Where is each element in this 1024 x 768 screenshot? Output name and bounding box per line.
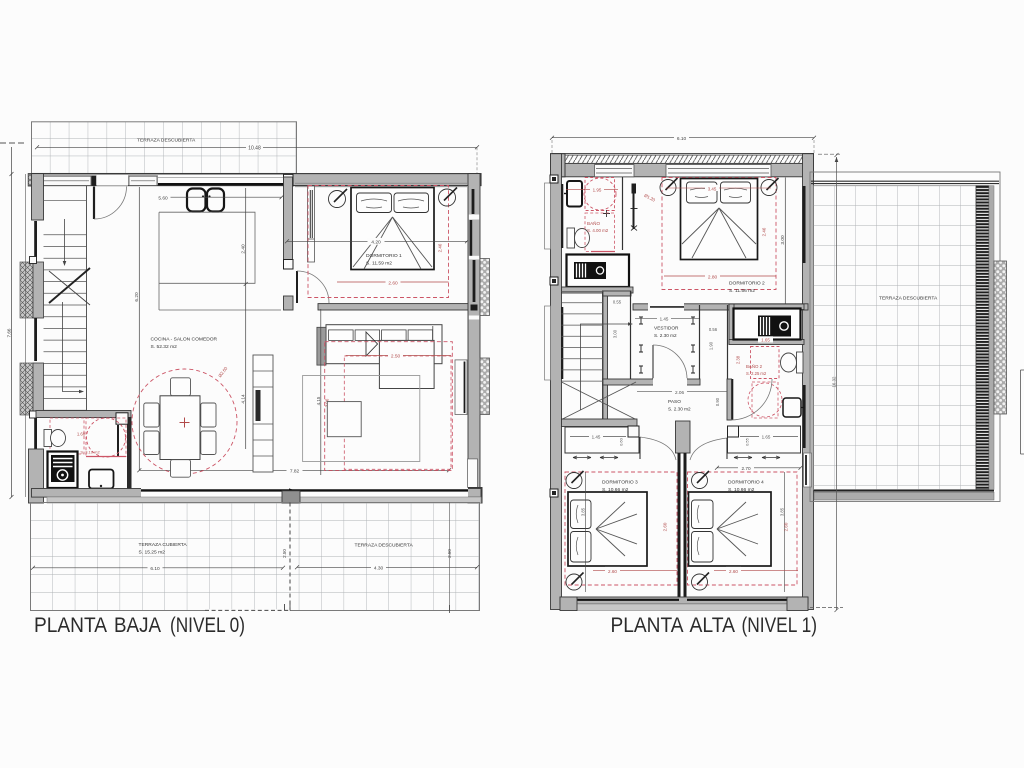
svg-text:2.50: 2.50 [282,549,287,558]
svg-text:0.60: 0.60 [619,437,624,446]
svg-text:S. 11.56 m2: S. 11.56 m2 [729,288,755,294]
svg-text:2.46: 2.46 [762,227,767,236]
svg-text:4.15: 4.15 [316,396,321,405]
svg-text:2.50: 2.50 [391,354,401,360]
svg-text:2.40: 2.40 [241,244,247,254]
svg-text:4.30: 4.30 [374,566,384,572]
svg-text:2.60: 2.60 [608,569,617,574]
svg-text:3.00: 3.00 [780,235,786,245]
svg-text:0.55: 0.55 [745,437,750,446]
svg-text:0.55: 0.55 [613,300,622,305]
svg-text:S. 2.30 m2: S. 2.30 m2 [654,333,677,338]
svg-text:16.32: 16.32 [831,376,836,388]
svg-text:DORMITORIO 4: DORMITORIO 4 [728,480,764,486]
svg-text:TERRAZA CUBIERTA: TERRAZA CUBIERTA [139,542,188,548]
svg-text:1.65: 1.65 [761,338,770,343]
svg-text:0.56: 0.56 [709,327,718,332]
svg-text:DORMITORIO 1: DORMITORIO 1 [366,253,402,259]
svg-text:6.10: 6.10 [677,136,687,142]
svg-text:(NIVEL 1): (NIVEL 1) [742,614,818,637]
svg-text:2.70: 2.70 [741,466,751,471]
svg-text:S. 11.59 m2: S. 11.59 m2 [366,261,392,267]
svg-text:4.20: 4.20 [371,240,381,246]
svg-text:1.68: 1.68 [77,432,86,437]
svg-text:1.65: 1.65 [762,435,771,440]
svg-text:3.85: 3.85 [581,507,586,516]
svg-text:5.60: 5.60 [158,195,168,201]
svg-text:S. 10.66 m2: S. 10.66 m2 [602,487,629,493]
svg-text:4.14: 4.14 [241,394,247,404]
svg-text:TERRAZA DESCUBIERTA: TERRAZA DESCUBIERTA [879,296,938,302]
svg-text:S. 15.25 m2: S. 15.25 m2 [139,550,166,556]
svg-text:(NIVEL 0): (NIVEL 0) [170,614,245,637]
svg-text:3.00: 3.00 [613,329,618,338]
svg-text:DORMITORIO 3: DORMITORIO 3 [602,480,638,486]
svg-text:3.45: 3.45 [708,186,717,191]
svg-text:S. 4.00 m2: S. 4.00 m2 [587,228,609,233]
svg-text:10.48: 10.48 [248,146,261,152]
svg-text:1.90: 1.90 [709,341,714,350]
svg-text:2.60: 2.60 [388,281,398,287]
svg-text:2.60: 2.60 [663,522,668,531]
svg-text:S. 3.19 m2: S. 3.19 m2 [80,450,100,455]
svg-text:2.46: 2.46 [438,243,443,252]
svg-text:DORMITORIO 2: DORMITORIO 2 [729,281,765,287]
svg-text:1.45: 1.45 [660,316,669,321]
svg-text:PLANTA: PLANTA [611,614,684,637]
svg-text:2.38: 2.38 [736,355,741,364]
svg-text:0.90: 0.90 [715,397,720,406]
svg-text:S. 2.30 m2: S. 2.30 m2 [668,407,691,412]
svg-text:ALTA: ALTA [690,614,736,637]
svg-text:TERRAZA DESCUBIERTA: TERRAZA DESCUBIERTA [355,543,414,549]
svg-text:PLANTA: PLANTA [34,614,107,637]
svg-text:6.20: 6.20 [134,292,140,302]
svg-text:2.80: 2.80 [708,275,718,281]
svg-text:3.85: 3.85 [780,507,785,516]
svg-text:6.10: 6.10 [150,566,160,572]
svg-text:7.82: 7.82 [290,469,300,475]
svg-text:S. 2.25 m2: S. 2.25 m2 [746,371,767,376]
svg-text:VESTIDOR: VESTIDOR [654,326,679,332]
svg-text:2.60: 2.60 [784,522,789,531]
svg-text:BAÑO 2: BAÑO 2 [746,364,763,369]
svg-text:2.06: 2.06 [675,390,685,395]
svg-text:PASO: PASO [668,399,681,405]
svg-text:TERRAZA DESCUBIERTA: TERRAZA DESCUBIERTA [137,138,196,144]
svg-text:2.60: 2.60 [729,569,738,574]
svg-text:S. 10.66 m2: S. 10.66 m2 [728,487,755,493]
svg-text:S. 52.32 m2: S. 52.32 m2 [151,344,178,350]
svg-text:1.95: 1.95 [593,187,602,192]
svg-text:1.45: 1.45 [592,435,601,440]
svg-text:7.66: 7.66 [6,328,11,337]
svg-text:BAÑO: BAÑO [587,220,600,226]
svg-text:2.50: 2.50 [447,549,452,558]
svg-text:BAJA: BAJA [114,614,161,637]
svg-text:COCINA - SALON COMEDOR: COCINA - SALON COMEDOR [151,337,218,343]
